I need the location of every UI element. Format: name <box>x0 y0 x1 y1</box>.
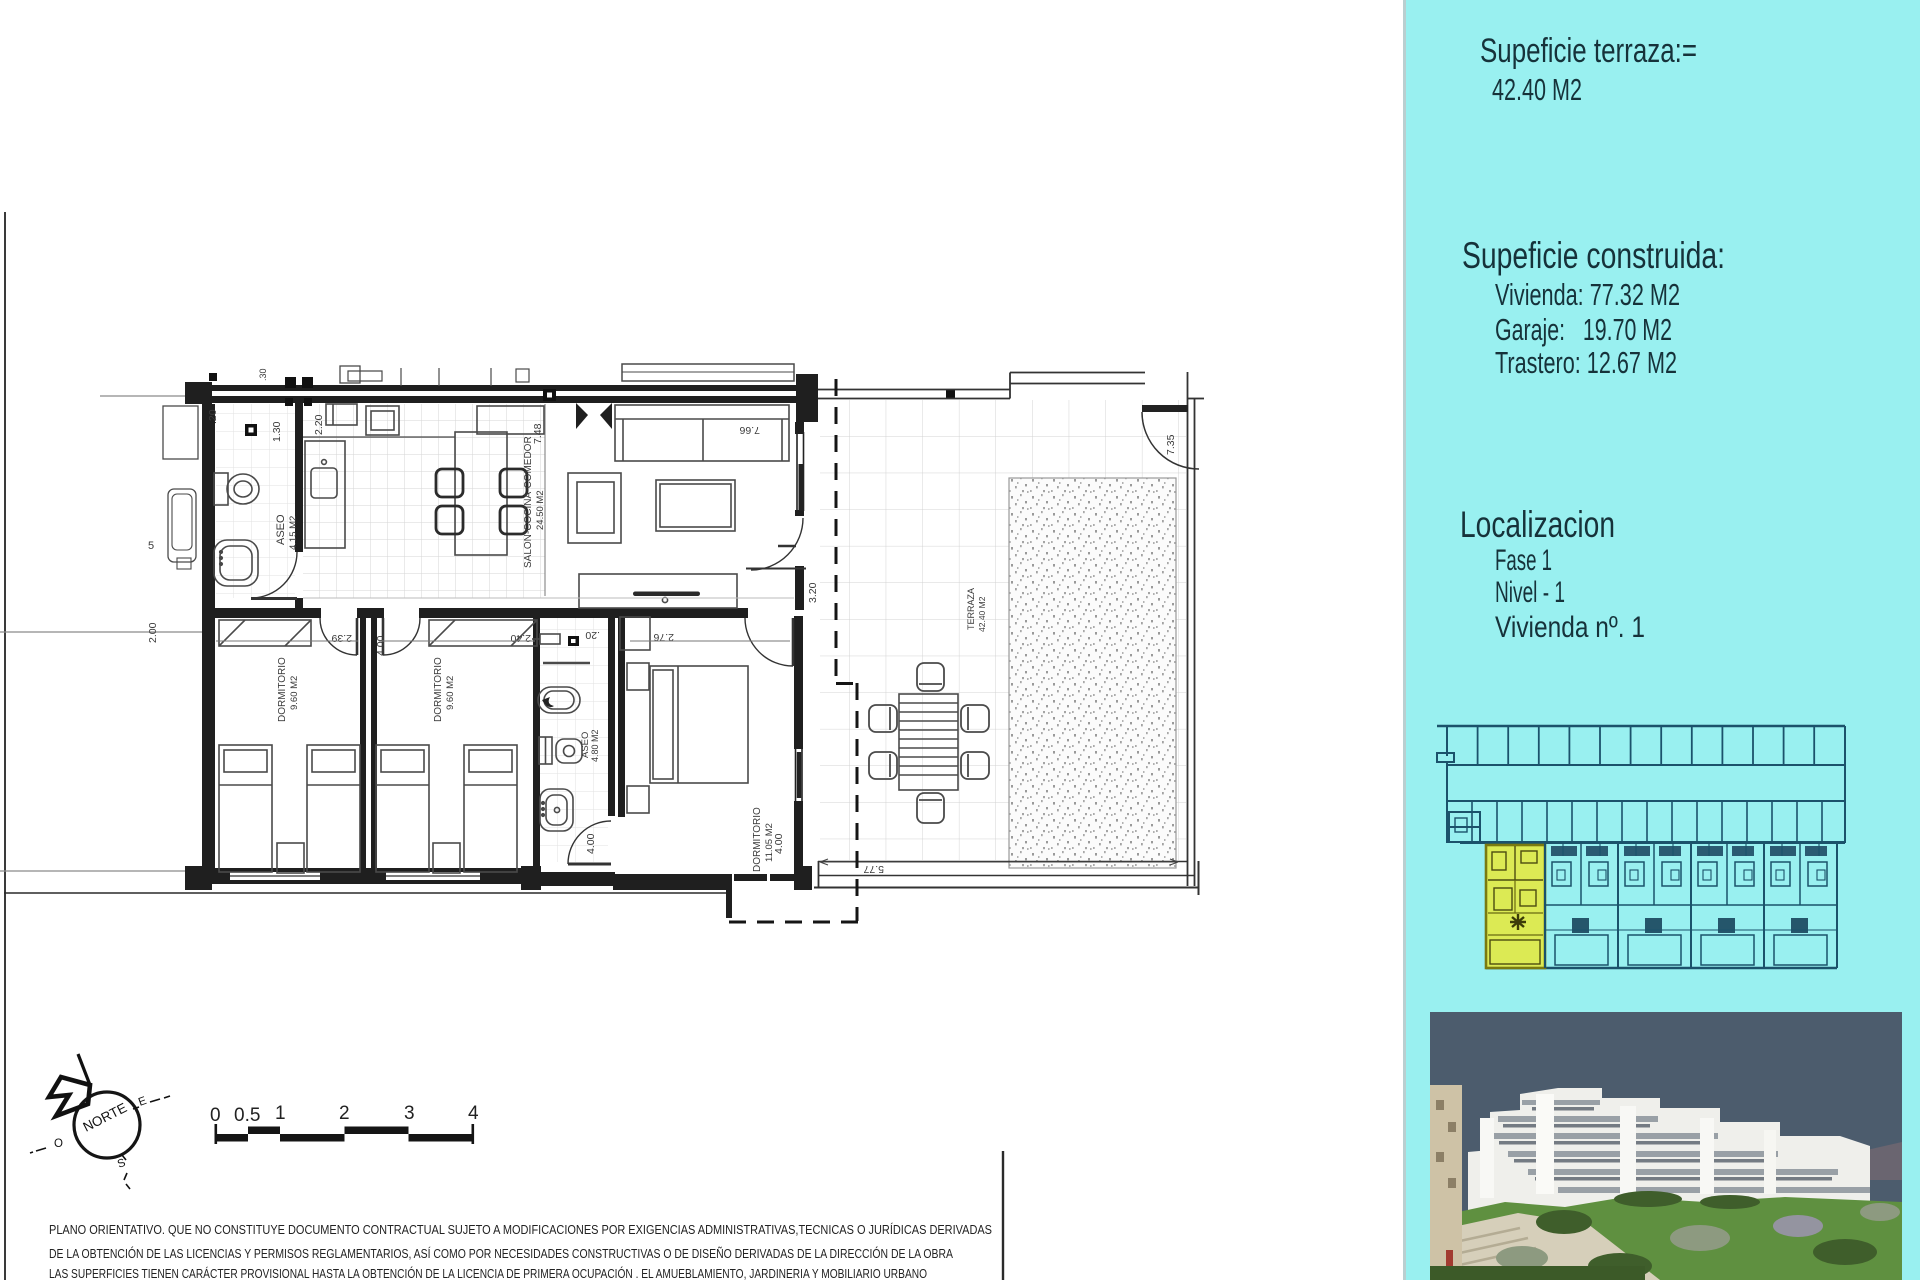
svg-text:LAS SUPERFICIES TIENEN CARÁCTE: LAS SUPERFICIES TIENEN CARÁCTER PROVISIO… <box>49 1266 927 1280</box>
svg-text:1: 1 <box>275 1103 286 1124</box>
svg-text:DORMITORIO: DORMITORIO <box>433 657 444 722</box>
svg-text:42.40 M2: 42.40 M2 <box>977 596 987 632</box>
svg-text:TERRAZA: TERRAZA <box>966 588 976 630</box>
svg-text:Localizacion: Localizacion <box>1460 504 1615 545</box>
svg-text:3: 3 <box>404 1103 415 1124</box>
svg-text:4.00: 4.00 <box>375 635 387 656</box>
svg-text:24.50 M2: 24.50 M2 <box>535 490 546 530</box>
svg-text:Garaje: 19.70 M2: Garaje: 19.70 M2 <box>1495 312 1672 347</box>
svg-text:DORMITORIO: DORMITORIO <box>752 807 763 872</box>
svg-text:4.00: 4.00 <box>773 833 785 854</box>
svg-text:.20: .20 <box>585 629 600 641</box>
svg-text:Supeficie construida:: Supeficie construida: <box>1462 235 1725 276</box>
svg-text:PLANO ORIENTATIVO. QUE NO CONS: PLANO ORIENTATIVO. QUE NO CONSTITUYE DOC… <box>49 1222 992 1237</box>
svg-text:5: 5 <box>148 540 154 552</box>
svg-text:2.00: 2.00 <box>147 622 159 643</box>
svg-text:4.15 M2: 4.15 M2 <box>288 516 299 550</box>
svg-text:.30: .30 <box>258 368 268 381</box>
svg-text:Fase 1: Fase 1 <box>1495 544 1552 577</box>
svg-text:9.60 M2: 9.60 M2 <box>289 676 300 710</box>
svg-text:4.00: 4.00 <box>585 833 597 854</box>
svg-text:7.35: 7.35 <box>1165 434 1177 455</box>
svg-text:4.80 M2: 4.80 M2 <box>590 729 600 762</box>
svg-text:2.20: 2.20 <box>313 414 325 435</box>
svg-text:.20: .20 <box>207 409 219 424</box>
svg-text:5.77: 5.77 <box>863 863 884 875</box>
svg-text:4: 4 <box>468 1103 479 1124</box>
svg-text:9.60 M2: 9.60 M2 <box>445 676 456 710</box>
svg-text:0.5: 0.5 <box>234 1105 260 1126</box>
svg-text:SALON-COCINA-COMEDOR: SALON-COCINA-COMEDOR <box>523 436 534 568</box>
svg-text:DORMITORIO: DORMITORIO <box>277 657 288 722</box>
svg-text:2: 2 <box>339 1103 350 1124</box>
svg-text:42.40 M2: 42.40 M2 <box>1492 72 1582 107</box>
svg-text:O: O <box>54 1138 63 1150</box>
svg-text:Trastero: 12.67 M2: Trastero: 12.67 M2 <box>1495 345 1677 380</box>
svg-text:0: 0 <box>210 1105 221 1126</box>
svg-text:3.20: 3.20 <box>807 582 819 603</box>
svg-text:2.39: 2.39 <box>331 632 352 644</box>
svg-text:7.66: 7.66 <box>739 424 760 436</box>
svg-text:Nivel - 1: Nivel - 1 <box>1495 576 1565 609</box>
svg-text:7.48: 7.48 <box>532 423 544 444</box>
svg-text:Vivienda nº. 1: Vivienda nº. 1 <box>1495 611 1645 644</box>
svg-text:Vivienda: 77.32 M2: Vivienda: 77.32 M2 <box>1495 277 1680 312</box>
svg-text:DE LA OBTENCIÓN DE LAS LICENCI: DE LA OBTENCIÓN DE LAS LICENCIAS Y PERMI… <box>49 1246 953 1261</box>
svg-text:ASEO: ASEO <box>275 514 287 545</box>
svg-text:1.30: 1.30 <box>271 421 283 442</box>
svg-text:2.40: 2.40 <box>510 632 531 644</box>
svg-text:Supeficie terraza:=: Supeficie terraza:= <box>1480 32 1697 70</box>
